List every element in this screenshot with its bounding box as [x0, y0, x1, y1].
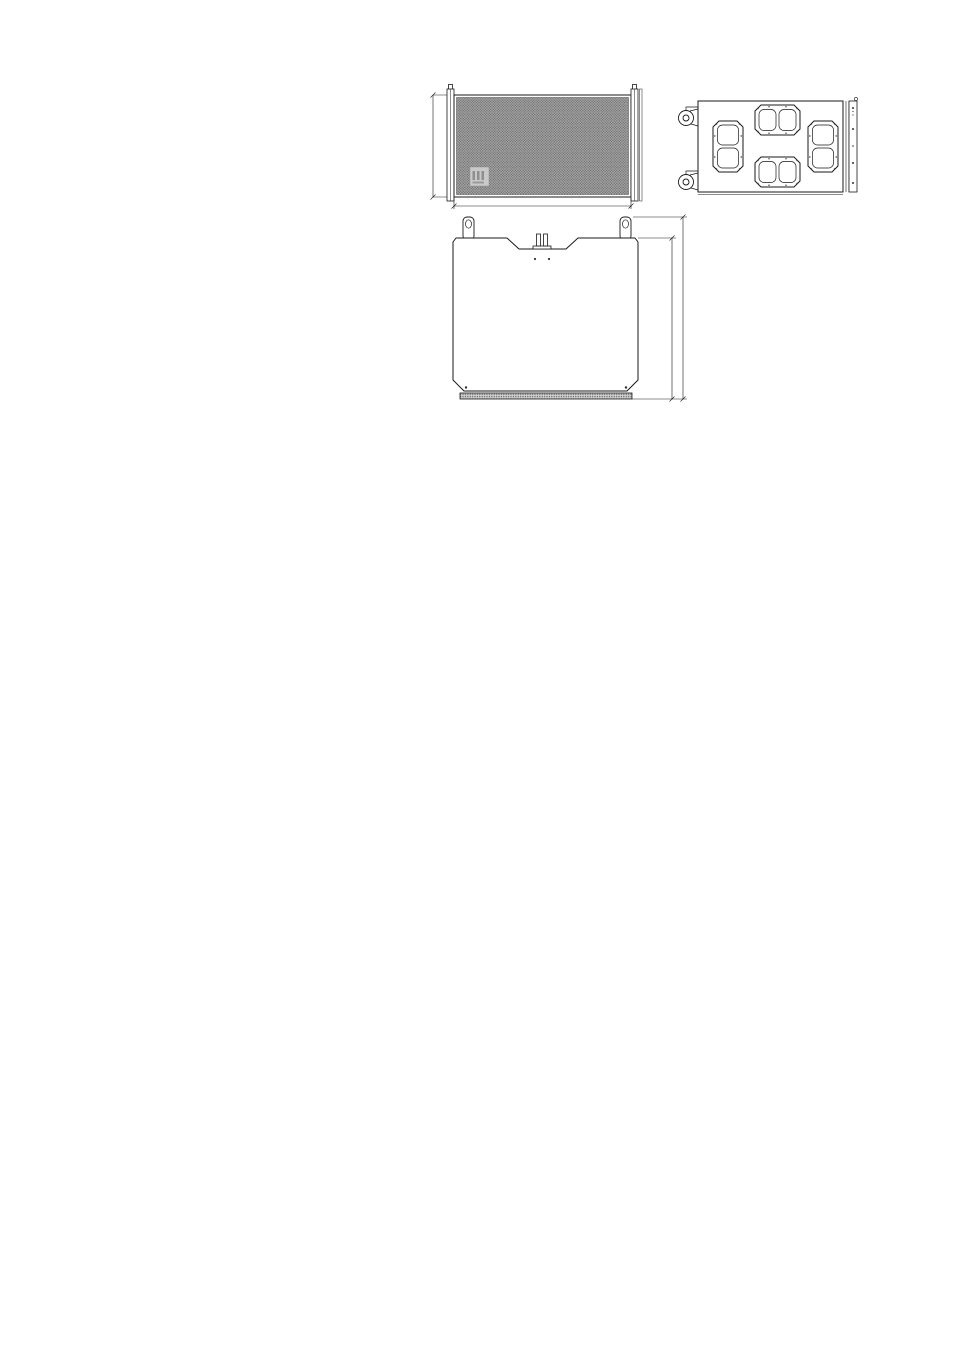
screw-dot — [534, 258, 536, 260]
frequency-response-chart — [83, 140, 413, 390]
right-rigging-rail — [631, 85, 642, 202]
width-dimension — [452, 198, 634, 209]
bottom-view-drawing — [672, 85, 872, 210]
handle-left — [713, 121, 743, 172]
brand-logo — [470, 167, 489, 186]
rear-panel-strip — [846, 97, 858, 192]
spec-sheet-page — [0, 0, 954, 1350]
screw-dot — [548, 258, 550, 260]
front-view-drawing — [425, 80, 660, 215]
handle-bottom — [755, 157, 800, 187]
left-rigging-rail — [447, 85, 454, 202]
caster-wheel-top — [679, 107, 699, 126]
top-view-drawing — [445, 213, 695, 408]
caster-wheel-bottom — [679, 171, 699, 190]
handle-right — [808, 121, 838, 172]
chart-canvas — [83, 140, 413, 390]
rigging-bracket-left — [461, 217, 476, 240]
handle-top — [755, 105, 800, 135]
depth-dimension — [632, 236, 687, 402]
cabinet-top-outline — [453, 238, 638, 391]
alignment-pins — [533, 234, 551, 249]
rigging-bracket-right — [618, 217, 633, 240]
overall-depth-dimension — [633, 215, 687, 402]
